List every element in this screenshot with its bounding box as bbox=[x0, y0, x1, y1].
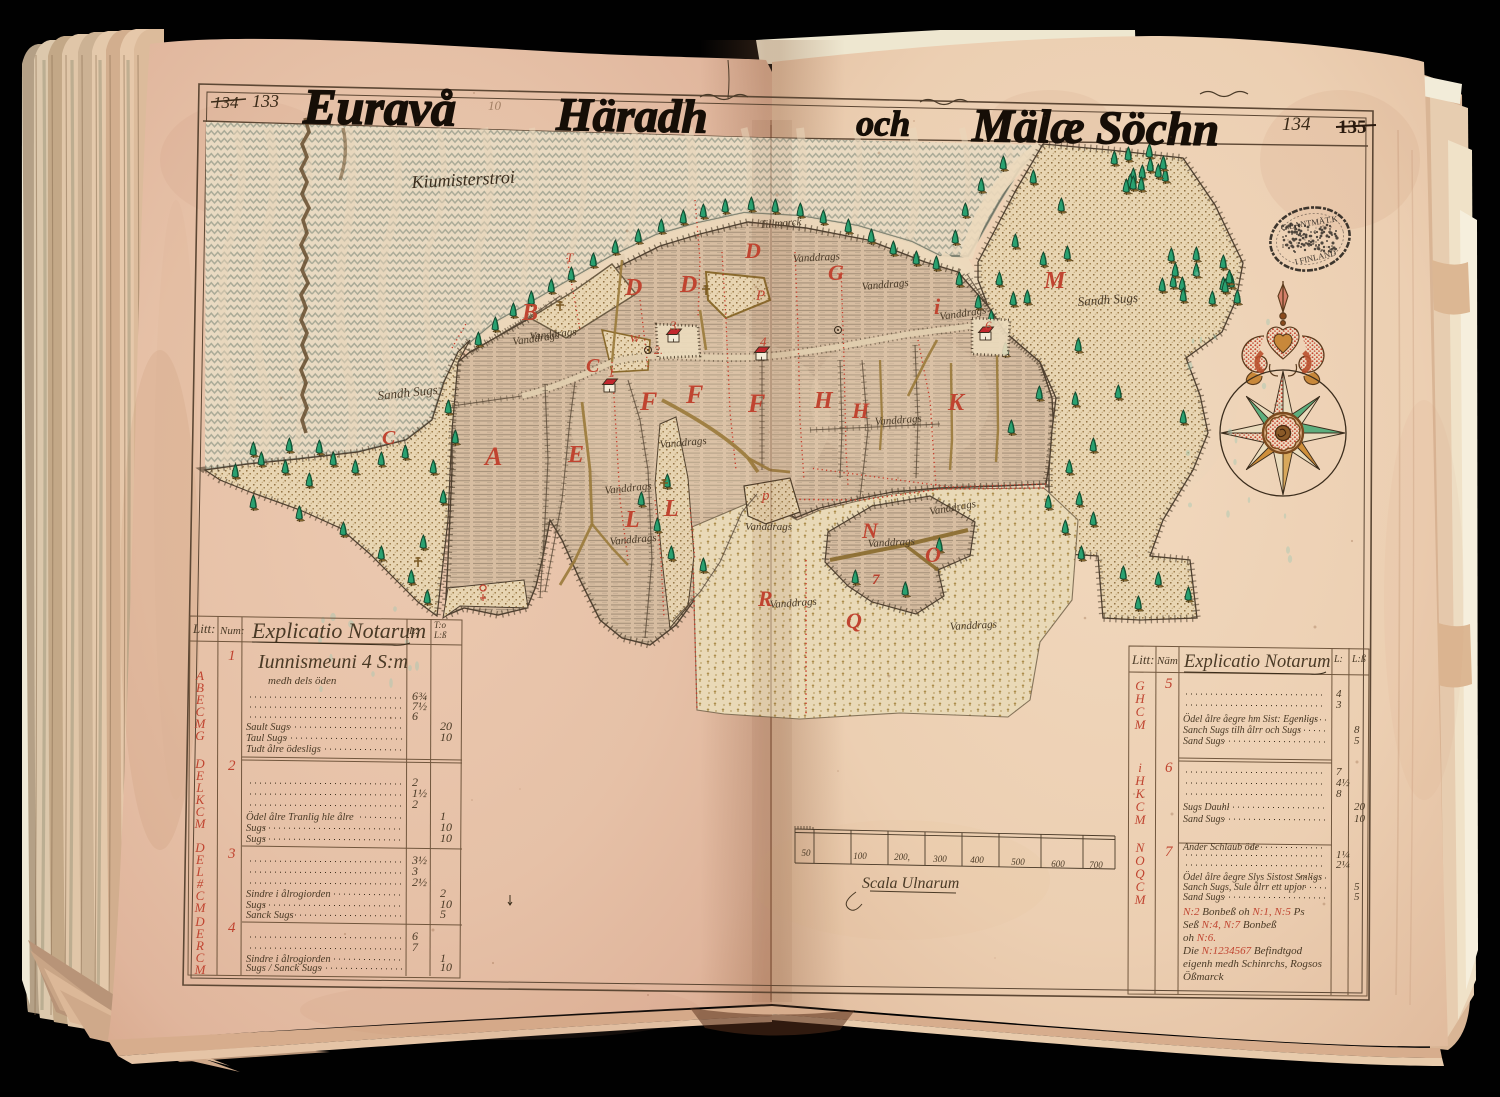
svg-text:5: 5 bbox=[440, 907, 446, 921]
svg-text:T: T bbox=[566, 250, 574, 265]
svg-text:10: 10 bbox=[1354, 813, 1366, 825]
svg-text:H: H bbox=[851, 398, 870, 423]
svg-text:och: och bbox=[856, 103, 911, 144]
svg-text:2: 2 bbox=[412, 797, 418, 811]
svg-text:Häradh: Häradh bbox=[555, 89, 708, 144]
svg-text:L:: L: bbox=[1333, 654, 1343, 665]
svg-text:M: M bbox=[194, 900, 207, 915]
svg-text:M: M bbox=[194, 816, 207, 831]
svg-text:2.: 2. bbox=[654, 343, 663, 357]
svg-text:Ößmarck: Ößmarck bbox=[1183, 971, 1225, 983]
svg-text:1: 1 bbox=[228, 648, 236, 664]
svg-text:oh N:6.: oh N:6. bbox=[1183, 932, 1216, 944]
svg-text:M: M bbox=[1043, 268, 1067, 294]
svg-text:Iunnismeuni 4 S:m: Iunnismeuni 4 S:m bbox=[257, 651, 408, 673]
svg-text:A: A bbox=[483, 442, 502, 471]
svg-text:O: O bbox=[925, 542, 941, 567]
svg-text:2½: 2½ bbox=[412, 875, 427, 889]
svg-text:5: 5 bbox=[1165, 676, 1173, 692]
svg-text:8: 8 bbox=[1336, 788, 1342, 800]
svg-text:3.: 3. bbox=[669, 318, 680, 333]
svg-text:Litt:: Litt: bbox=[1131, 652, 1154, 667]
svg-text:7: 7 bbox=[872, 572, 880, 588]
svg-text:Scala Ulnarum: Scala Ulnarum bbox=[862, 875, 959, 892]
svg-text:Näm: Näm bbox=[1156, 655, 1178, 667]
svg-text:D: D bbox=[679, 272, 697, 298]
svg-text:700: 700 bbox=[1089, 860, 1103, 870]
svg-text:Vanddrags: Vanddrags bbox=[793, 251, 841, 265]
svg-text:7: 7 bbox=[412, 940, 419, 954]
svg-text:L:: L: bbox=[408, 625, 419, 637]
svg-text:Explicatio Notarum: Explicatio Notarum bbox=[1183, 652, 1330, 672]
svg-text:K: K bbox=[947, 390, 966, 416]
svg-text:Vanddrags: Vanddrags bbox=[868, 536, 916, 550]
svg-text:Sand Sugs: Sand Sugs bbox=[1183, 892, 1225, 903]
svg-text:Ander Schlaub öde: Ander Schlaub öde bbox=[1182, 842, 1260, 853]
svg-text:Taul Sugs: Taul Sugs bbox=[246, 733, 287, 744]
svg-text:6: 6 bbox=[412, 709, 418, 723]
svg-text:M: M bbox=[1134, 812, 1147, 827]
svg-text:E: E bbox=[567, 442, 584, 468]
svg-text:C: C bbox=[586, 355, 600, 377]
svg-text:200,: 200, bbox=[894, 852, 910, 862]
svg-text:medh dels öden: medh dels öden bbox=[268, 675, 337, 687]
svg-text:300: 300 bbox=[932, 854, 947, 864]
svg-text:Ödel ålre Tranlig hle ålre: Ödel ålre Tranlig hle ålre bbox=[246, 811, 354, 823]
svg-text:134: 134 bbox=[1282, 114, 1311, 135]
svg-text:Q: Q bbox=[846, 608, 862, 633]
svg-text:10: 10 bbox=[440, 730, 452, 744]
svg-text:F: F bbox=[747, 389, 765, 418]
svg-text:Litt:: Litt: bbox=[192, 621, 215, 636]
svg-text:Sanch Sugs tilh ålrr och Sugs: Sanch Sugs tilh ålrr och Sugs bbox=[1183, 725, 1301, 736]
svg-text:Ödel ålre åegre hm Sist: Egenl: Ödel ålre åegre hm Sist: Egenligs bbox=[1183, 713, 1318, 725]
svg-text:6: 6 bbox=[985, 318, 992, 333]
svg-text:M: M bbox=[1134, 892, 1147, 907]
svg-text:Sand Sugs: Sand Sugs bbox=[1183, 736, 1225, 747]
svg-text:134: 134 bbox=[213, 93, 239, 112]
svg-text:600: 600 bbox=[1051, 859, 1065, 869]
svg-text:4: 4 bbox=[760, 334, 767, 349]
svg-text:B: B bbox=[521, 300, 538, 326]
svg-text:Sugs: Sugs bbox=[246, 834, 266, 845]
svg-text:D: D bbox=[744, 238, 761, 263]
svg-text:Sindre i ålrogiorden: Sindre i ålrogiorden bbox=[246, 889, 331, 900]
svg-text:10: 10 bbox=[440, 960, 452, 974]
svg-text:Tudt ålre ödesligs: Tudt ålre ödesligs bbox=[246, 744, 321, 755]
svg-text:M: M bbox=[1134, 717, 1147, 732]
svg-text:F: F bbox=[685, 380, 703, 409]
svg-text:50: 50 bbox=[802, 848, 812, 858]
svg-text:Sugs / Sanck Sugs: Sugs / Sanck Sugs bbox=[246, 963, 322, 974]
svg-text:3: 3 bbox=[227, 846, 236, 862]
svg-text:Explicatio Notarum: Explicatio Notarum bbox=[251, 618, 426, 643]
svg-text:L: L bbox=[624, 507, 640, 533]
svg-text:C: C bbox=[382, 427, 396, 449]
svg-text:D: D bbox=[624, 275, 642, 301]
svg-text:6: 6 bbox=[1165, 760, 1173, 776]
svg-text:20: 20 bbox=[1354, 801, 1366, 813]
svg-text:Vanddrags: Vanddrags bbox=[745, 521, 792, 533]
svg-text:Sault Sugs: Sault Sugs bbox=[246, 722, 290, 733]
svg-text:eigenh medh Schinrchs, Rogsos: eigenh medh Schinrchs, Rogsos bbox=[1183, 958, 1322, 970]
svg-text:Num:: Num: bbox=[219, 625, 244, 637]
svg-text:4: 4 bbox=[228, 920, 236, 936]
svg-text:133: 133 bbox=[252, 91, 279, 111]
svg-text:w: w bbox=[630, 330, 640, 346]
svg-text:Sugs: Sugs bbox=[246, 823, 266, 834]
svg-text:400: 400 bbox=[970, 855, 984, 865]
svg-text:5: 5 bbox=[1354, 735, 1360, 747]
svg-text:G: G bbox=[828, 260, 844, 285]
svg-text:Sanck Sugs: Sanck Sugs bbox=[246, 910, 294, 921]
svg-text:G: G bbox=[195, 728, 205, 743]
svg-text:M: M bbox=[194, 962, 207, 977]
svg-text:Mälæ Söchn: Mälæ Söchn bbox=[971, 100, 1220, 156]
svg-text:L:ß: L:ß bbox=[1351, 654, 1366, 665]
svg-text:500: 500 bbox=[1011, 857, 1025, 867]
svg-text:H: H bbox=[813, 388, 834, 414]
svg-text:2: 2 bbox=[228, 758, 236, 774]
svg-text:N:2 Bonbeß oh N:1, N:5 Ps: N:2 Bonbeß oh N:1, N:5 Ps bbox=[1182, 906, 1305, 918]
svg-text:5: 5 bbox=[1354, 891, 1360, 903]
svg-text:1: 1 bbox=[608, 365, 615, 380]
svg-text:3: 3 bbox=[1335, 699, 1342, 711]
svg-text:Sand Sugs: Sand Sugs bbox=[1183, 814, 1225, 825]
svg-text:Sugs Dauhl: Sugs Dauhl bbox=[1183, 802, 1230, 813]
svg-text:F: F bbox=[639, 387, 657, 416]
svg-text:Die N:1234567 Befindtgod: Die N:1234567 Befindtgod bbox=[1182, 945, 1303, 957]
svg-text:L: L bbox=[663, 496, 679, 522]
svg-text:Euravå: Euravå bbox=[302, 78, 457, 137]
svg-text:Vanddrags: Vanddrags bbox=[950, 619, 998, 633]
svg-text:L:ß: L:ß bbox=[433, 630, 447, 640]
svg-text:2¼: 2¼ bbox=[1336, 859, 1350, 871]
svg-text:100: 100 bbox=[853, 851, 867, 861]
svg-text:10: 10 bbox=[488, 98, 502, 113]
svg-text:p: p bbox=[761, 488, 770, 504]
svg-text:P: P bbox=[755, 288, 765, 304]
svg-text:10: 10 bbox=[440, 831, 452, 845]
svg-text:T:o: T:o bbox=[434, 620, 447, 630]
svg-text:Seß N:4, N:7 Bonbeß: Seß N:4, N:7 Bonbeß bbox=[1183, 919, 1277, 931]
